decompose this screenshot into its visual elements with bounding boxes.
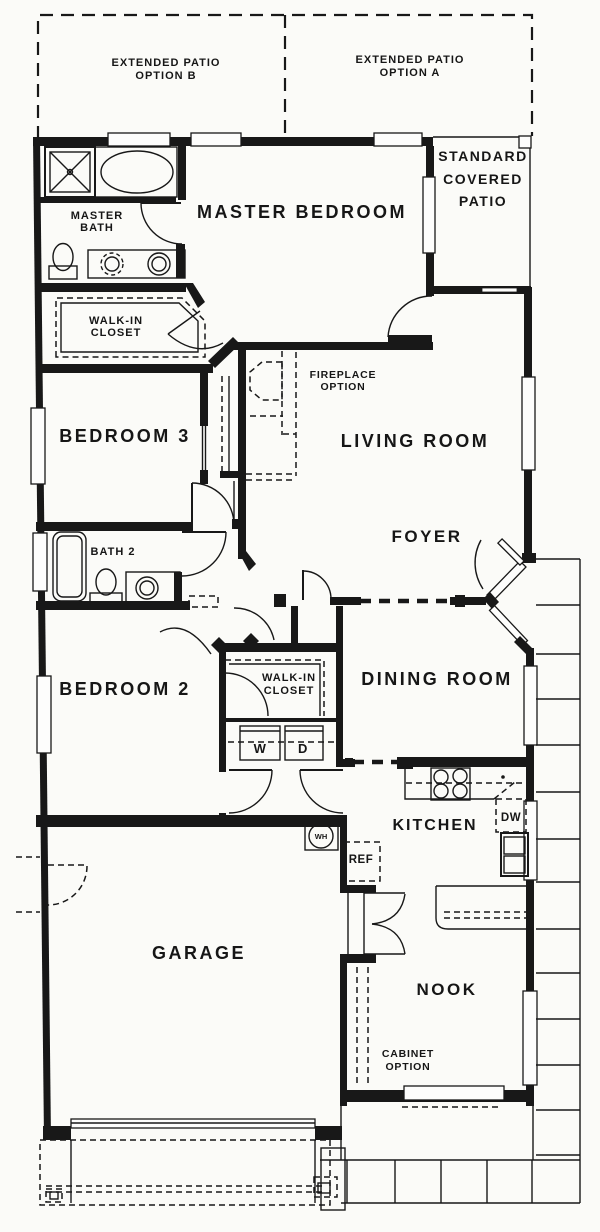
- svg-text:STANDARD: STANDARD: [438, 148, 528, 164]
- svg-text:PATIO: PATIO: [459, 193, 507, 209]
- svg-text:FOYER: FOYER: [391, 527, 462, 546]
- svg-text:MASTER: MASTER: [71, 210, 123, 222]
- svg-text:GARAGE: GARAGE: [152, 943, 246, 963]
- svg-text:BEDROOM 3: BEDROOM 3: [59, 426, 191, 446]
- svg-text:DW: DW: [501, 812, 521, 824]
- svg-text:BATH: BATH: [80, 222, 114, 234]
- svg-text:W: W: [254, 741, 267, 756]
- svg-text:WH: WH: [315, 832, 328, 841]
- svg-text:FIREPLACE: FIREPLACE: [310, 369, 377, 381]
- svg-text:WALK-IN: WALK-IN: [89, 315, 143, 327]
- svg-text:CLOSET: CLOSET: [264, 685, 315, 697]
- svg-text:COVERED: COVERED: [443, 171, 523, 187]
- svg-text:BEDROOM 2: BEDROOM 2: [59, 679, 191, 699]
- svg-text:EXTENDED PATIO: EXTENDED PATIO: [112, 57, 221, 69]
- svg-text:LIVING ROOM: LIVING ROOM: [341, 431, 490, 451]
- svg-text:KITCHEN: KITCHEN: [392, 817, 477, 834]
- svg-text:MASTER BEDROOM: MASTER BEDROOM: [197, 202, 407, 222]
- svg-text:WALK-IN: WALK-IN: [262, 672, 316, 684]
- svg-text:EXTENDED PATIO: EXTENDED PATIO: [356, 54, 465, 66]
- svg-text:NOOK: NOOK: [417, 980, 478, 999]
- svg-text:CLOSET: CLOSET: [91, 327, 142, 339]
- svg-text:D: D: [298, 741, 308, 756]
- svg-text:REF: REF: [349, 854, 374, 866]
- svg-text:OPTION A: OPTION A: [380, 67, 441, 79]
- svg-text:OPTION B: OPTION B: [135, 70, 196, 82]
- svg-text:CABINET: CABINET: [382, 1048, 434, 1060]
- svg-text:OPTION: OPTION: [320, 381, 365, 393]
- svg-text:DINING ROOM: DINING ROOM: [361, 669, 513, 689]
- svg-text:OPTION: OPTION: [385, 1061, 430, 1073]
- svg-text:BATH 2: BATH 2: [91, 546, 136, 558]
